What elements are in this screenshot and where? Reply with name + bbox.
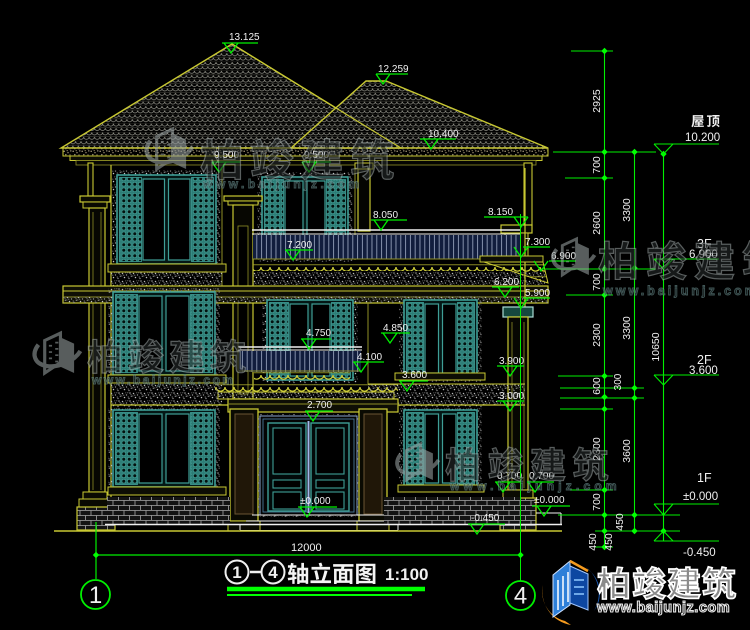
svg-text:3.600: 3.600 (402, 370, 427, 381)
svg-text:10.400: 10.400 (428, 129, 459, 140)
svg-text:450: 450 (614, 513, 626, 531)
svg-text:www.baijunjz.com: www.baijunjz.com (596, 600, 730, 616)
svg-text:4: 4 (268, 563, 278, 582)
svg-text:1:100: 1:100 (385, 565, 428, 584)
svg-text:700: 700 (591, 156, 603, 174)
svg-text:10650: 10650 (650, 332, 662, 361)
svg-text:10.200: 10.200 (685, 132, 720, 144)
svg-text:300: 300 (613, 373, 624, 390)
svg-text:1: 1 (89, 582, 102, 609)
svg-text:3600: 3600 (621, 439, 633, 463)
svg-text:1F: 1F (697, 471, 712, 485)
svg-text:8.150: 8.150 (488, 207, 513, 218)
svg-text:www.baijunjz.com: www.baijunjz.com (202, 177, 363, 191)
svg-text:±0.000: ±0.000 (683, 491, 718, 503)
svg-text:450: 450 (587, 533, 599, 551)
svg-text:7.300: 7.300 (525, 237, 550, 248)
svg-text:450: 450 (603, 533, 615, 551)
svg-text:13.125: 13.125 (229, 32, 260, 43)
svg-text:www.baijunjz.com: www.baijunjz.com (91, 373, 236, 387)
svg-text:700: 700 (591, 273, 603, 291)
svg-text:12.259: 12.259 (378, 64, 409, 75)
svg-text:4.850: 4.850 (383, 323, 408, 334)
svg-text:700: 700 (591, 493, 603, 511)
svg-text:1: 1 (232, 563, 241, 582)
svg-text:6.200: 6.200 (494, 277, 519, 288)
svg-text:3300: 3300 (621, 198, 633, 222)
svg-text:8.050: 8.050 (373, 210, 398, 221)
svg-text:12000: 12000 (291, 542, 322, 554)
svg-text:7.200: 7.200 (287, 240, 312, 251)
svg-text:2.700: 2.700 (307, 400, 332, 411)
svg-text:4: 4 (514, 583, 527, 610)
svg-text:2300: 2300 (591, 323, 603, 347)
svg-text:4.750: 4.750 (306, 328, 331, 339)
svg-text:www.baijunjz.com: www.baijunjz.com (602, 284, 750, 298)
svg-text:www.baijunjz.com: www.baijunjz.com (449, 479, 621, 493)
svg-text:2925: 2925 (591, 89, 603, 113)
svg-text:5.900: 5.900 (525, 288, 550, 299)
svg-text:-0.450: -0.450 (683, 547, 716, 559)
svg-text:±0.000: ±0.000 (300, 496, 331, 507)
svg-text:-0.450: -0.450 (471, 513, 500, 524)
svg-text:±0.000: ±0.000 (534, 495, 565, 506)
svg-text:3300: 3300 (621, 316, 633, 340)
svg-text:600: 600 (591, 377, 603, 395)
svg-text:4.100: 4.100 (357, 352, 382, 363)
svg-text:2600: 2600 (591, 211, 603, 235)
